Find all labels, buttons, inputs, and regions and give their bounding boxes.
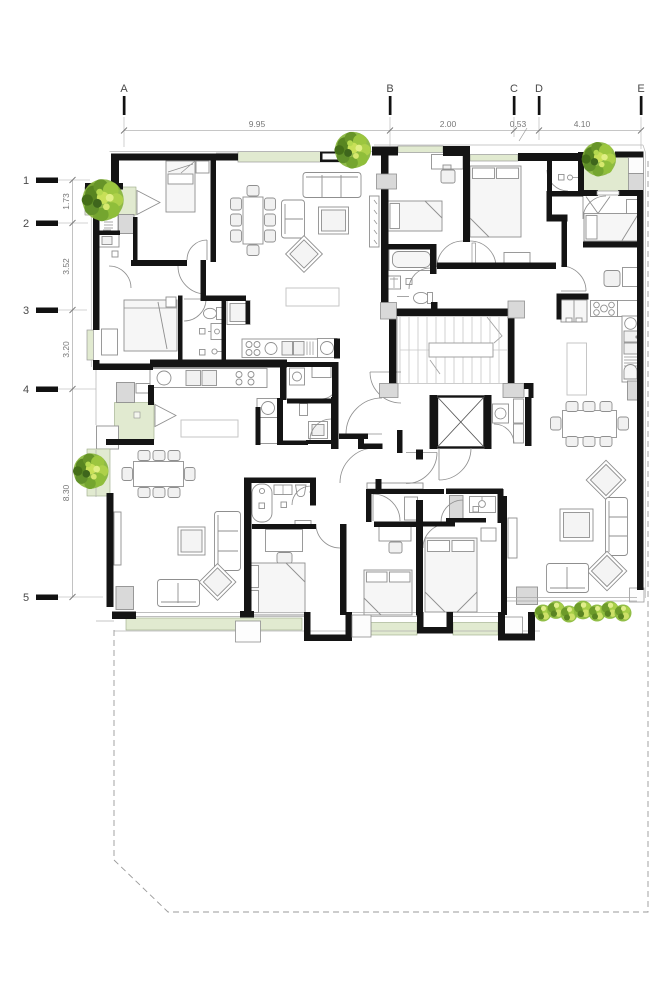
svg-text:D: D	[535, 83, 543, 95]
svg-text:2.00: 2.00	[440, 119, 457, 129]
svg-text:3.52: 3.52	[61, 258, 71, 275]
svg-text:9.95: 9.95	[249, 119, 266, 129]
svg-text:4.10: 4.10	[574, 119, 591, 129]
svg-text:0.53: 0.53	[510, 119, 527, 129]
svg-text:3: 3	[23, 305, 29, 317]
svg-text:1.73: 1.73	[61, 193, 71, 210]
svg-text:E: E	[637, 83, 644, 95]
svg-text:C: C	[510, 83, 518, 95]
svg-text:8.30: 8.30	[61, 484, 71, 501]
svg-text:1: 1	[23, 175, 29, 187]
svg-text:A: A	[120, 83, 128, 95]
svg-text:4: 4	[23, 384, 29, 396]
svg-text:3.20: 3.20	[61, 341, 71, 358]
svg-text:5: 5	[23, 592, 29, 604]
svg-text:B: B	[386, 83, 393, 95]
svg-text:2: 2	[23, 218, 29, 230]
